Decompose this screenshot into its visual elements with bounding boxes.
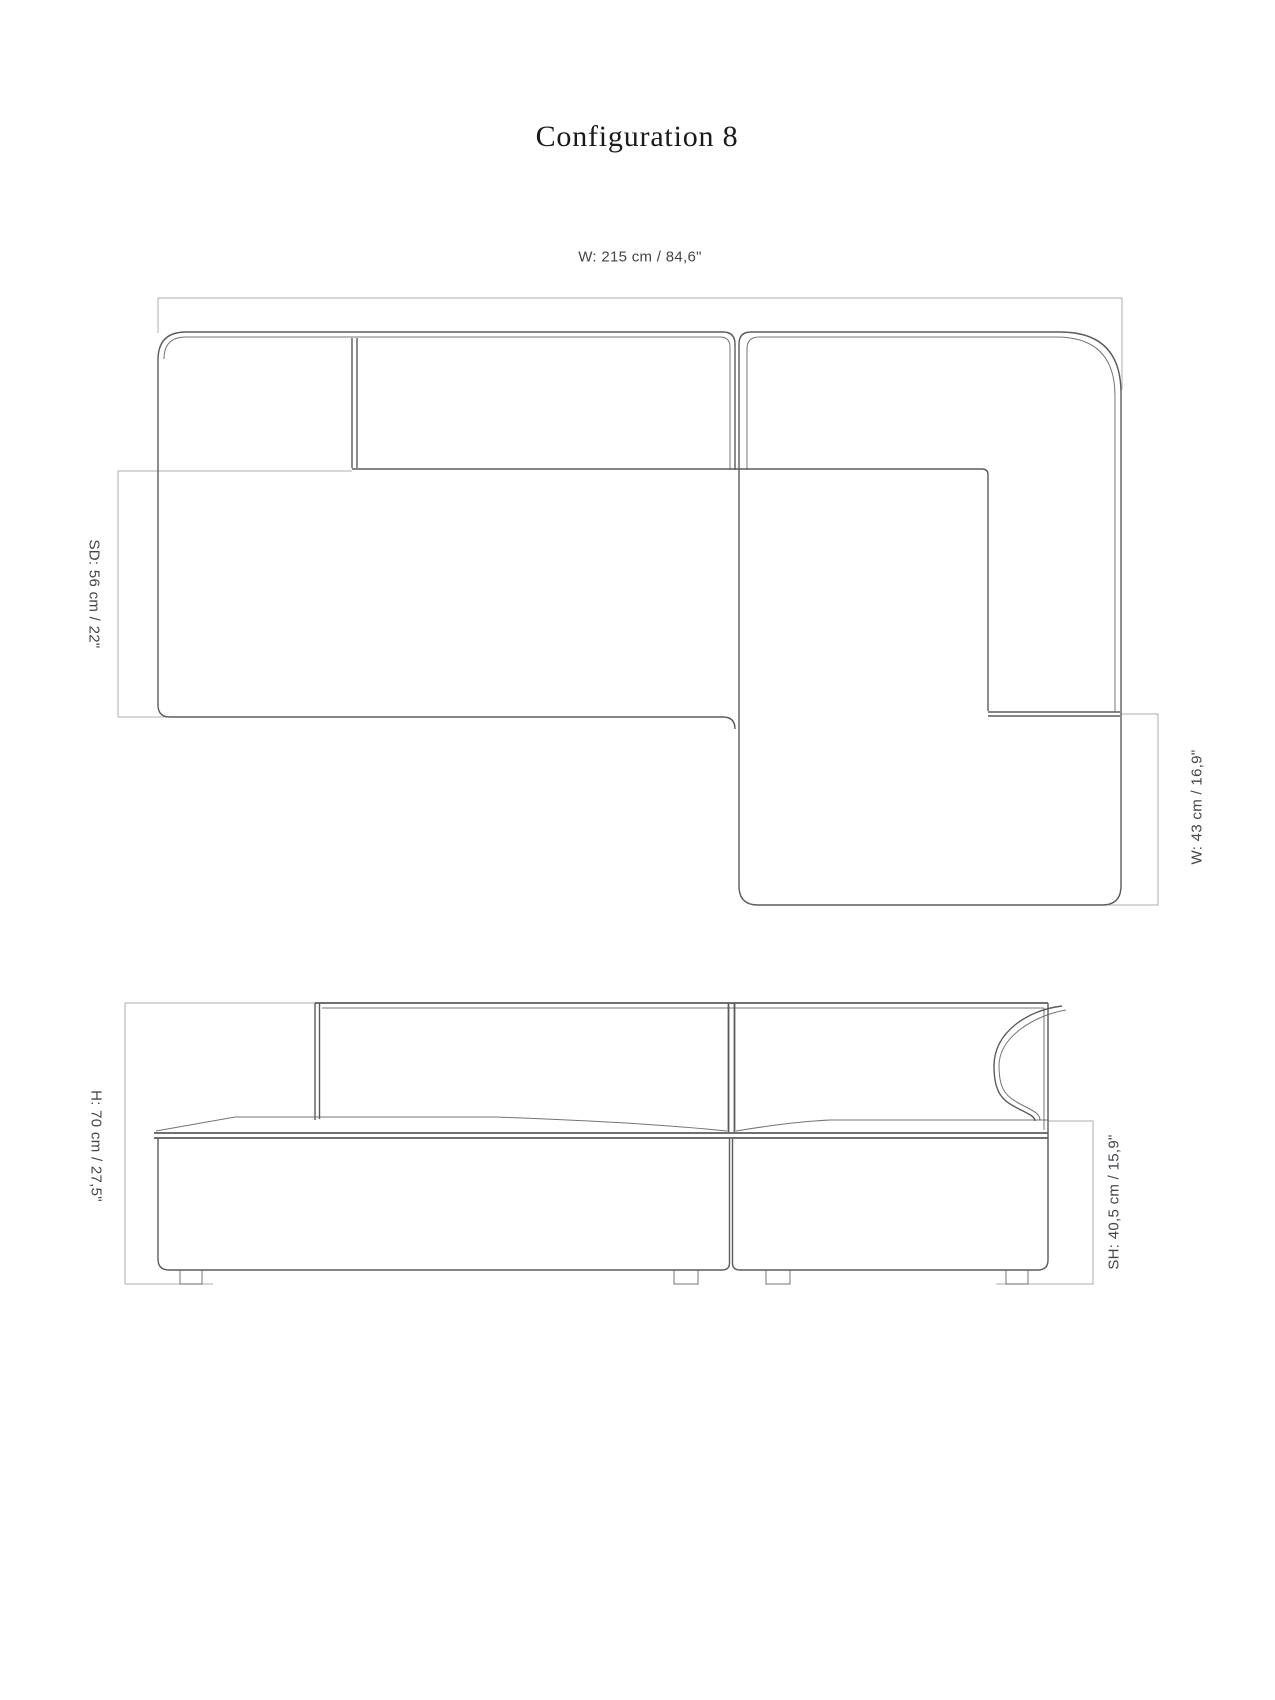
dim-label-overall-height: H: 70 cm / 27,5" xyxy=(88,1090,105,1202)
backrest-left-edge-path xyxy=(315,1003,320,1120)
front-view-dimension-lines xyxy=(125,1003,1093,1284)
left-module-outline-path xyxy=(158,332,735,729)
backrest-band-bottom-path xyxy=(988,712,1120,716)
dim-label-seat-height: SH: 40,5 cm / 15,9" xyxy=(1106,1134,1123,1269)
seat-inner-line-path xyxy=(352,469,988,711)
left-cushion-crown-path xyxy=(156,1117,727,1131)
corner-backrest-wrap-curve-path xyxy=(994,1006,1062,1121)
seat-front-band-path xyxy=(154,1133,1048,1138)
seat-depth-bracket xyxy=(118,471,352,717)
front-right-edge-path xyxy=(1038,1003,1048,1270)
backrest-cushion-seam-path xyxy=(352,338,357,468)
overall-height-bracket xyxy=(125,1003,316,1284)
overall-width-dimension-line xyxy=(158,298,1122,390)
seat-height-bracket xyxy=(996,1121,1093,1284)
left-module-inner-line-path xyxy=(164,337,730,470)
base-outline-left-path xyxy=(158,1138,730,1270)
backrest-module-junction-path xyxy=(729,1003,735,1132)
dim-label-module-width: W: 43 cm / 16,9" xyxy=(1189,750,1206,865)
corner-module-inner-line-path xyxy=(747,337,1115,712)
base-outline-right-path xyxy=(733,1139,1039,1270)
module-width-bracket xyxy=(1106,714,1158,905)
sofa-feet-path xyxy=(180,1270,1028,1284)
top-view-dimension-lines xyxy=(118,298,1158,905)
dim-label-overall-width: W: 215 cm / 84,6" xyxy=(578,249,702,266)
front-view-sofa xyxy=(154,1003,1066,1284)
top-view-sofa xyxy=(158,332,1121,905)
corner-module-outline-path xyxy=(739,332,1121,905)
dim-label-seat-depth: SD: 56 cm / 22" xyxy=(86,539,103,648)
drawing-page: Configuration 8 xyxy=(0,0,1275,1700)
right-cushion-crown-path xyxy=(736,1120,1048,1131)
